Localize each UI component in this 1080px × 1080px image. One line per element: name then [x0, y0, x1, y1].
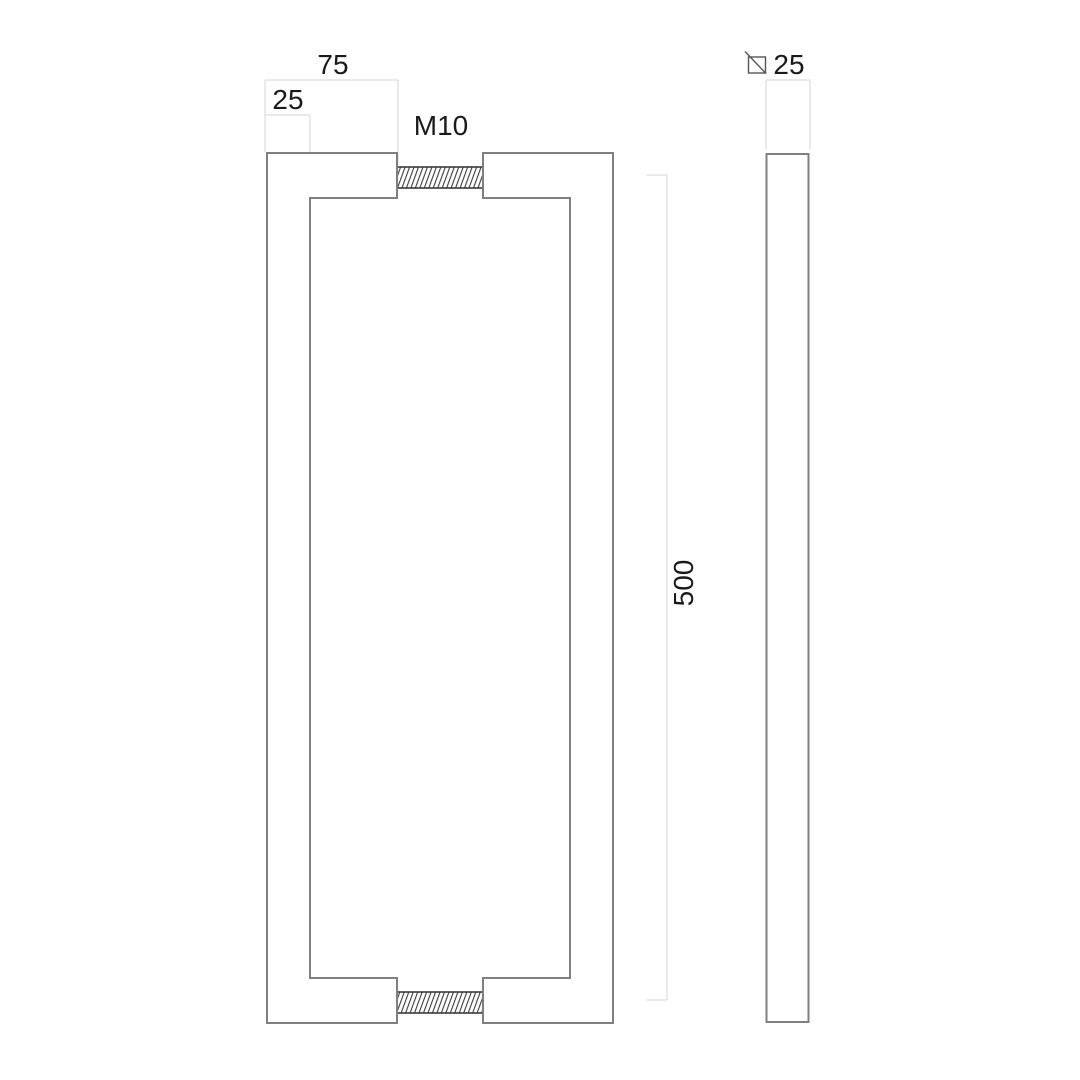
threaded-stud-top — [397, 167, 484, 188]
threaded-stud-bottom — [397, 992, 484, 1013]
technical-drawing — [0, 0, 1080, 1080]
dimension-label-square-25: 25 — [773, 51, 804, 79]
square-section-icon — [745, 52, 766, 74]
dimension-lines-side — [766, 80, 810, 150]
front-view-left-handle — [267, 153, 397, 1023]
thread-label-m10: M10 — [414, 112, 468, 140]
side-view-profile — [767, 154, 809, 1022]
drawing-canvas: 75 25 M10 500 25 — [0, 0, 1080, 1080]
dimension-label-500: 500 — [670, 560, 698, 607]
dimension-lines-length — [647, 175, 668, 1000]
dimension-label-75: 75 — [317, 51, 348, 79]
dimension-label-25: 25 — [272, 86, 303, 114]
front-view-right-handle — [483, 153, 613, 1023]
